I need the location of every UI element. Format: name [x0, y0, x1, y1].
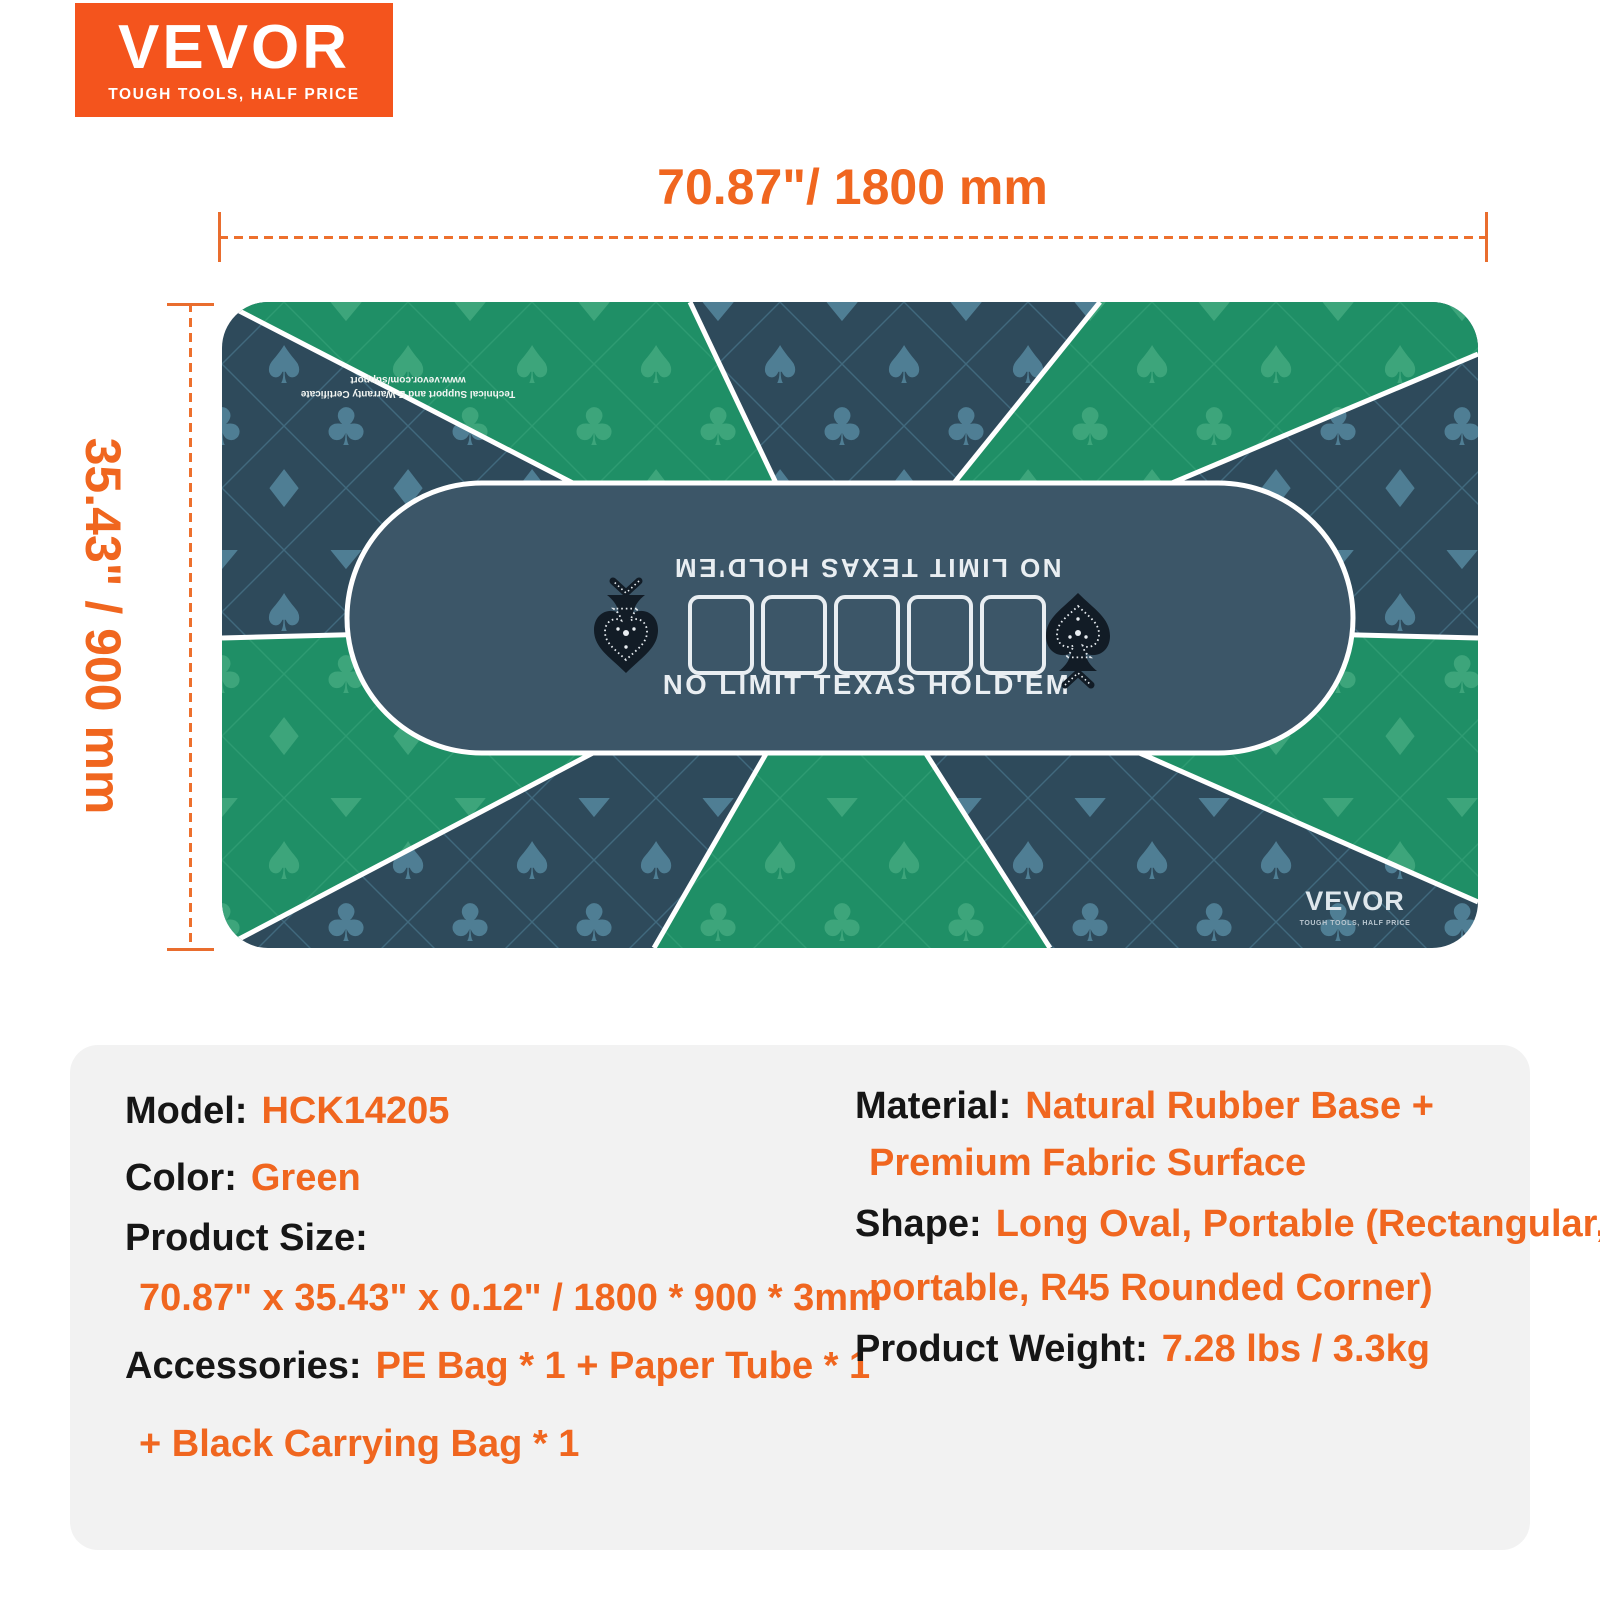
width-dimension-line [219, 236, 1486, 239]
spec-row-size-value: 70.87" x 35.43" x 0.12" / 1800 * 900 * 3… [125, 1277, 882, 1320]
vevor-logo: VEVOR TOUGH TOOLS, HALF PRICE [75, 3, 393, 117]
spec-row-size-label: Product Size: [125, 1217, 368, 1260]
spec-label: Product Weight: [855, 1328, 1148, 1370]
spec-value: portable, R45 Rounded Corner) [869, 1267, 1433, 1309]
spec-label: Material: [855, 1085, 1011, 1127]
spec-value: Green [251, 1157, 361, 1199]
spec-value: PE Bag * 1 + Paper Tube * 1 [376, 1345, 871, 1387]
spec-row-material: Material:Natural Rubber Base + [855, 1085, 1434, 1128]
mat-vevor-mark-tagline: TOUGH TOOLS, HALF PRICE [1300, 920, 1411, 927]
spec-panel: Model:HCK14205 Color:Green Product Size:… [70, 1045, 1530, 1550]
spec-value: HCK14205 [261, 1090, 449, 1132]
mat-support-line1: Technical Support and E-Warranty Certifi… [300, 388, 515, 399]
spec-value: 70.87" x 35.43" x 0.12" / 1800 * 900 * 3… [139, 1277, 882, 1319]
mat-center-oval [347, 483, 1353, 753]
height-dimension-tick-top [167, 303, 214, 306]
spec-row-accessories: Accessories:PE Bag * 1 + Paper Tube * 1 [125, 1345, 870, 1388]
spec-row-material-2: Premium Fabric Surface [855, 1142, 1306, 1185]
spec-row-color: Color:Green [125, 1157, 361, 1200]
spec-value: Premium Fabric Surface [869, 1142, 1306, 1184]
width-dimension-label: 70.87"/ 1800 mm [219, 158, 1486, 216]
spec-label: Product Size: [125, 1217, 368, 1259]
spec-value: 7.28 lbs / 3.3kg [1162, 1328, 1430, 1370]
mat-vevor-mark: VEVOR TOUGH TOOLS, HALF PRICE [1300, 886, 1411, 927]
height-dimension-label: 35.43" / 900 mm [73, 296, 133, 956]
width-dimension-tick-left [218, 212, 221, 262]
spec-label: Color: [125, 1157, 237, 1199]
spec-value: Long Oval, Portable (Rectangular, [996, 1203, 1600, 1245]
spec-row-accessories-2: + Black Carrying Bag * 1 [125, 1423, 579, 1466]
mat-title: NO LIMIT TEXAS HOLD'EM [663, 669, 1071, 700]
spec-label: Shape: [855, 1203, 982, 1245]
spec-value: + Black Carrying Bag * 1 [139, 1423, 579, 1465]
spec-row-shape-2: portable, R45 Rounded Corner) [855, 1267, 1433, 1310]
product-infographic: VEVOR TOUGH TOOLS, HALF PRICE 70.87"/ 18… [0, 0, 1600, 1600]
height-dimension-tick-bottom [167, 948, 214, 951]
vevor-logo-text: VEVOR [118, 17, 350, 79]
spec-row-weight: Product Weight:7.28 lbs / 3.3kg [855, 1328, 1430, 1371]
mat-vevor-mark-text: VEVOR [1305, 886, 1405, 916]
spec-row-shape: Shape:Long Oval, Portable (Rectangular, [855, 1203, 1600, 1246]
mat-title-reversed: NO LIMIT TEXAS HOLD'EM [672, 553, 1061, 583]
width-dimension-tick-right [1485, 212, 1488, 262]
spec-label: Model: [125, 1090, 247, 1132]
mat-support-line2: www.vevor.com/support [350, 374, 467, 385]
spec-row-model: Model:HCK14205 [125, 1090, 449, 1133]
height-dimension-line [189, 303, 192, 950]
poker-mat-image: ♠ ♦ ♣ ♣ ♥ ♥ ♠ ♦ ♣ ♣ ♥ ♥ [222, 302, 1478, 948]
vevor-logo-tagline: TOUGH TOOLS, HALF PRICE [108, 86, 360, 104]
spec-label: Accessories: [125, 1345, 362, 1387]
spec-value: Natural Rubber Base + [1025, 1085, 1434, 1127]
